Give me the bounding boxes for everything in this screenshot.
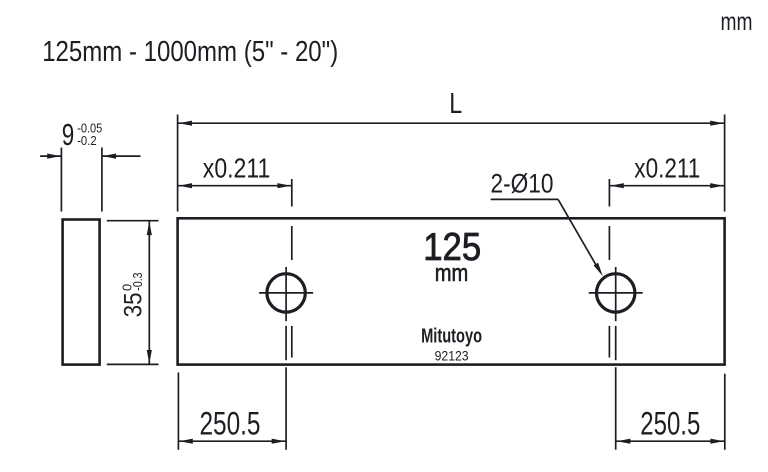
svg-text:2-Ø10: 2-Ø10	[491, 168, 554, 198]
svg-text:L: L	[449, 88, 462, 120]
svg-text:125mm - 1000mm (5" - 20"): 125mm - 1000mm (5" - 20")	[42, 36, 338, 68]
svg-text:x0.211: x0.211	[634, 152, 700, 183]
svg-text:mm: mm	[435, 260, 469, 287]
svg-text:x0.211: x0.211	[203, 152, 270, 183]
svg-text:9: 9	[62, 117, 75, 152]
svg-text:250.5: 250.5	[200, 405, 261, 441]
svg-text:35: 35	[120, 292, 148, 317]
svg-text:Mitutoyo: Mitutoyo	[421, 326, 482, 348]
svg-text:92123: 92123	[435, 347, 469, 363]
svg-text:mm: mm	[721, 8, 753, 36]
svg-text:-0.2: -0.2	[77, 133, 96, 148]
svg-text:-0.3: -0.3	[130, 273, 145, 291]
svg-text:250.5: 250.5	[640, 405, 700, 441]
